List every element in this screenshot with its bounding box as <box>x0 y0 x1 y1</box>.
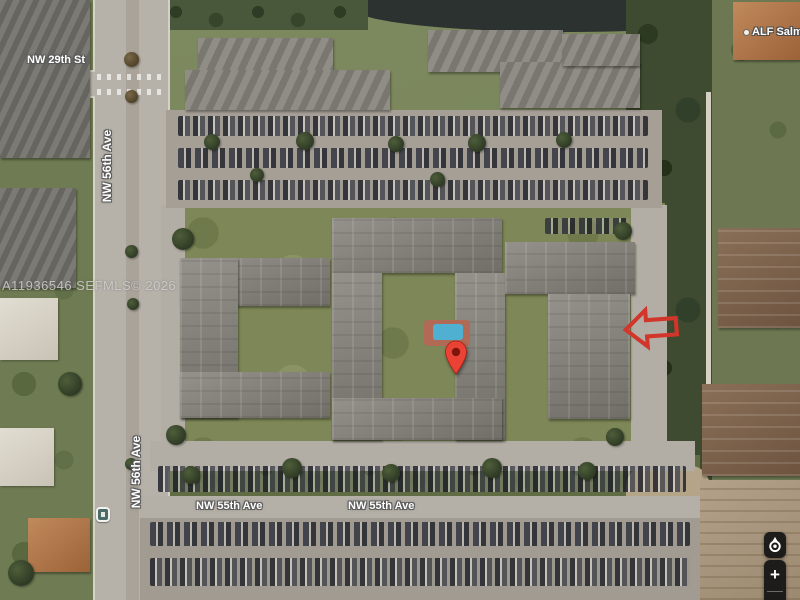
my-location-button[interactable] <box>764 532 786 558</box>
red-left-arrow-icon <box>620 303 681 353</box>
tree <box>166 425 186 445</box>
tree <box>578 462 596 480</box>
building-se <box>702 384 800 476</box>
street-label-nw-56th-ave: NW 56th Ave <box>100 130 114 202</box>
building-condo-w <box>0 188 76 288</box>
tree <box>125 245 138 258</box>
bus-stop-icon <box>96 507 110 522</box>
tree <box>382 464 400 482</box>
building-complex-center <box>332 218 502 273</box>
tree <box>204 134 220 150</box>
building-complex-wing <box>180 372 330 418</box>
zoom-control-divider <box>767 591 783 592</box>
zoom-control[interactable]: + <box>764 560 786 600</box>
swimming-pool <box>433 324 463 340</box>
street-label-nw-56th-ave: NW 56th Ave <box>129 436 143 508</box>
tree <box>468 134 486 152</box>
building-north-row <box>185 70 390 110</box>
tree <box>606 428 624 446</box>
building-north-row <box>500 62 640 108</box>
parked-cars-row <box>150 522 690 546</box>
tree <box>124 52 139 67</box>
building-complex-center <box>332 398 502 440</box>
street-label-nw-55th-ave: NW 55th Ave <box>196 500 262 512</box>
tree <box>58 372 82 396</box>
parked-cars-row <box>158 466 686 492</box>
building-small-sw <box>0 428 54 486</box>
tree <box>127 298 139 310</box>
building-orange-roof-sw <box>28 518 90 572</box>
trees-north <box>158 0 368 30</box>
place-label-alf-salmo: ALF Salmo <box>752 26 800 38</box>
tree <box>182 466 200 484</box>
parked-cars-row <box>178 180 648 200</box>
tree <box>282 458 302 478</box>
tree <box>172 228 194 250</box>
building-small-w <box>0 298 58 360</box>
building-north-row <box>562 34 640 66</box>
building-brown-roof-e <box>718 228 800 328</box>
red-map-pin-icon[interactable] <box>444 340 468 384</box>
mls-watermark: A11936546 SEFMLS© 2026 <box>2 278 176 293</box>
street-label-nw-29th-st: NW 29th St <box>27 54 85 66</box>
tree <box>614 222 632 240</box>
parked-cars-row <box>150 558 690 586</box>
tree <box>556 132 572 148</box>
tree <box>388 136 404 152</box>
building-condo-nw <box>0 0 90 158</box>
zoom-in-button[interactable]: + <box>764 562 786 588</box>
parked-cars-row <box>178 116 648 136</box>
tree <box>8 560 34 586</box>
tree <box>482 458 502 478</box>
tree <box>430 172 445 187</box>
tree <box>296 132 314 150</box>
place-marker-dot-icon <box>744 30 749 35</box>
tree <box>250 168 264 182</box>
tree <box>125 90 138 103</box>
crosswalk <box>97 74 165 80</box>
building-complex-east-wing <box>548 294 630 419</box>
building-complex-east-wing <box>505 242 635 294</box>
satellite-map[interactable]: NW 29th St NW 56th Ave NW 56th Ave NW 55… <box>0 0 800 600</box>
my-location-icon <box>764 532 786 558</box>
parked-cars-row <box>178 148 648 168</box>
street-label-nw-55th-ave: NW 55th Ave <box>348 500 414 512</box>
perimeter-wall <box>706 92 711 384</box>
